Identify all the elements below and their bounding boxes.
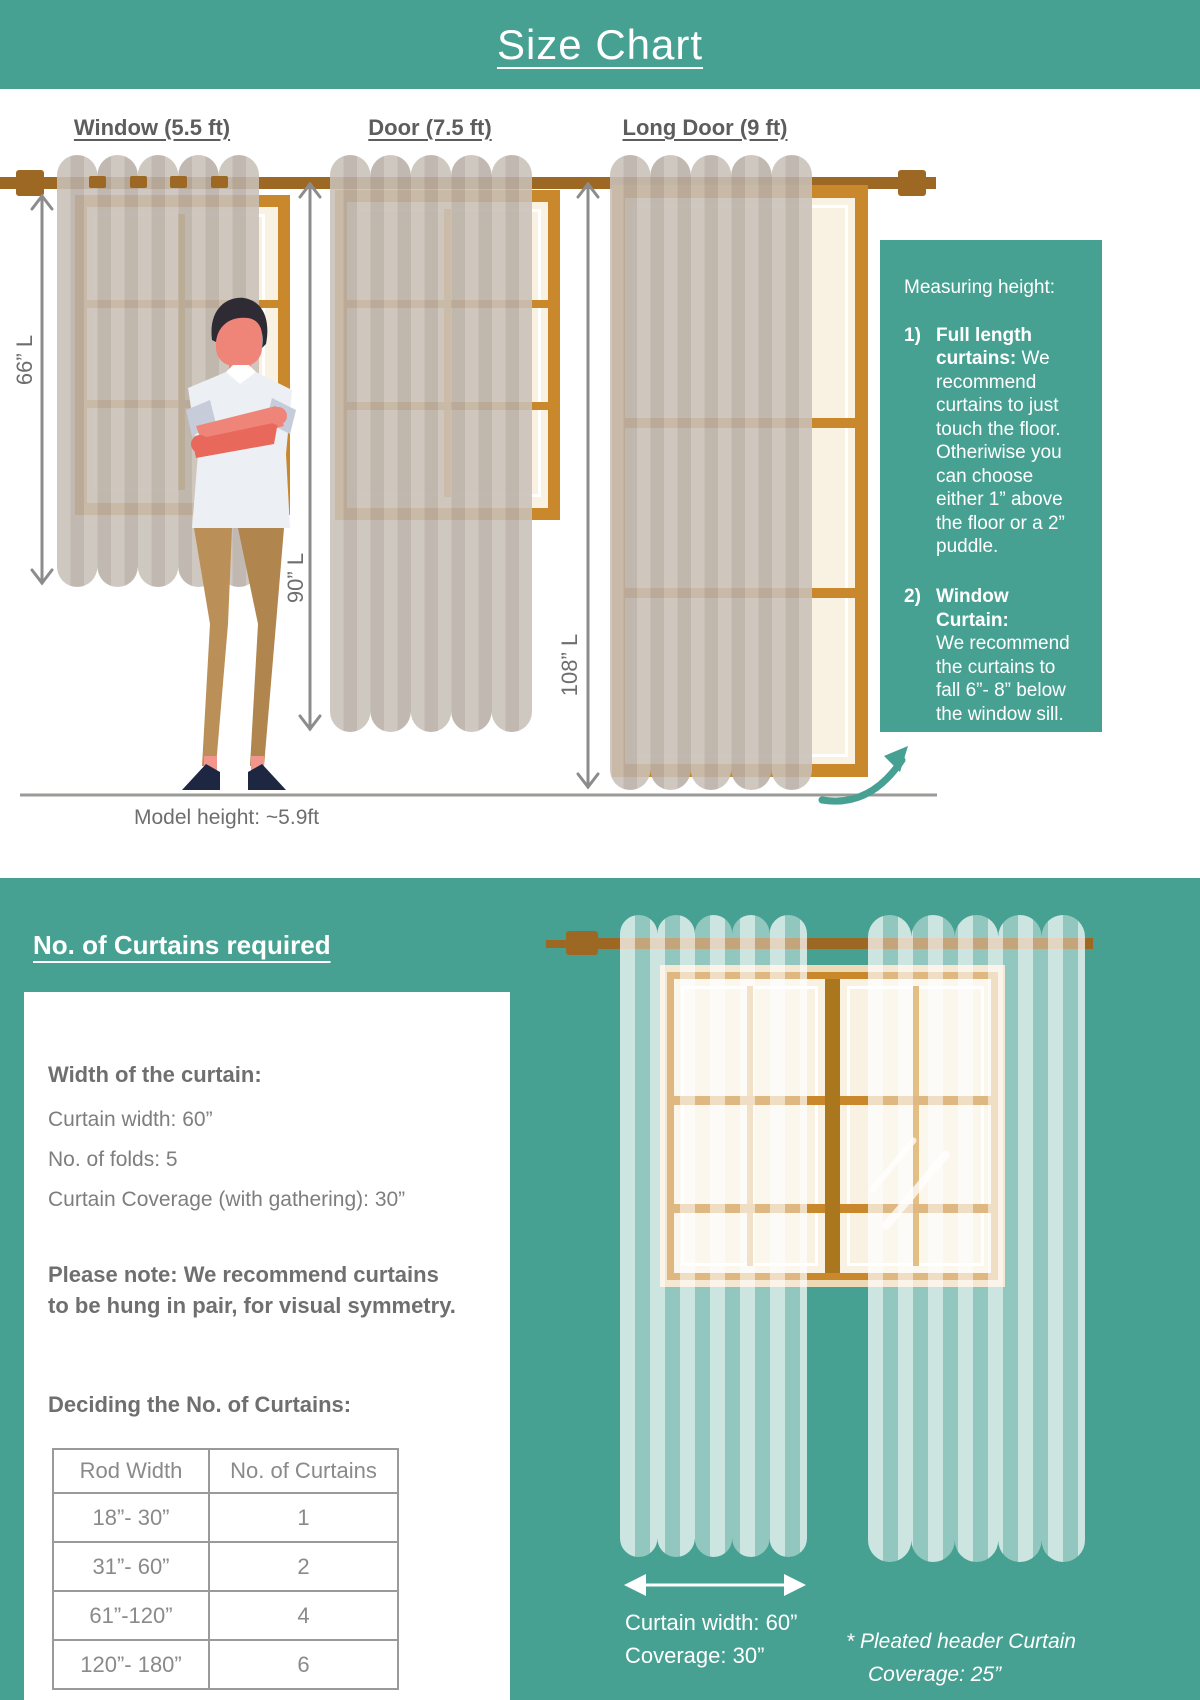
rod-width-cell: 31”- 60” <box>53 1542 209 1591</box>
curtain-count-cell: 2 <box>209 1542 398 1591</box>
bottom-width-line2: Coverage: 30” <box>625 1639 797 1672</box>
rod-end-cap-right <box>898 170 926 196</box>
grommet-tab <box>130 176 147 188</box>
curtain-width-line: Curtain width: 60” <box>48 1108 213 1132</box>
width-heading: Width of the curtain: <box>48 1062 262 1088</box>
grommet-tab <box>211 176 228 188</box>
rod-width-cell: 120”- 180” <box>53 1640 209 1689</box>
table-header-row: Rod Width No. of Curtains <box>53 1449 398 1493</box>
info-item-1: 1) Full length curtains: We recommend cu… <box>904 324 1082 559</box>
info-item-1-number: 1) <box>904 324 936 559</box>
info-item-2: 2) Window Curtain:We recommend the curta… <box>904 585 1082 726</box>
pleated-note-line2: Coverage: 25” <box>868 1659 1076 1692</box>
door-mullion <box>444 209 451 497</box>
table-row: 61”-120” 4 <box>53 1591 398 1640</box>
info-item-1-text: Full length curtains: We recommend curta… <box>936 324 1082 559</box>
info-item-2-number: 2) <box>904 585 936 726</box>
label-long-door: Long Door (9 ft) <box>623 115 788 141</box>
col-header-no-curtains: No. of Curtains <box>209 1449 398 1493</box>
bottom-width-line1: Curtain width: 60” <box>625 1606 797 1639</box>
pleated-note: * Pleated header Curtain Coverage: 25” <box>846 1626 1076 1691</box>
table-row: 31”- 60” 2 <box>53 1542 398 1591</box>
table-heading: Deciding the No. of Curtains: <box>48 1392 351 1418</box>
label-door: Door (7.5 ft) <box>368 115 491 141</box>
length-label-108: 108” L <box>557 625 583 705</box>
curtain-count-cell: 4 <box>209 1591 398 1640</box>
bottom-window-divider <box>825 979 840 1273</box>
info-item-2-text: Window Curtain:We recommend the curtains… <box>936 585 1082 726</box>
bottom-heading: No. of Curtains required <box>33 930 331 961</box>
note-line-1: Please note: We recommend curtains <box>48 1262 439 1288</box>
measuring-height-box: Measuring height: 1) Full length curtain… <box>880 240 1102 732</box>
long-door-bar <box>625 588 855 598</box>
info-box-title: Measuring height: <box>904 276 1082 300</box>
door-bar <box>347 300 548 308</box>
curtain-count-cell: 6 <box>209 1640 398 1689</box>
pleated-note-line1: * Pleated header Curtain <box>846 1626 1076 1659</box>
coverage-line: Curtain Coverage (with gathering): 30” <box>48 1188 405 1212</box>
door-bar <box>347 402 548 410</box>
long-door-inner-frame <box>632 205 848 757</box>
grommet-tab <box>89 176 106 188</box>
rod-width-cell: 61”-120” <box>53 1591 209 1640</box>
bottom-width-label: Curtain width: 60” Coverage: 30” <box>625 1606 797 1672</box>
bottom-window-mullion <box>747 986 753 1266</box>
bottom-window-mullion <box>913 986 919 1266</box>
length-label-66: 66” L <box>12 320 38 400</box>
size-chart-infographic: Size Chart Window (5.5 ft) Door (7.5 ft)… <box>0 0 1200 1700</box>
bottom-rod-cap <box>566 931 598 955</box>
page-title: Size Chart <box>497 21 703 69</box>
bottom-window-bar <box>840 1096 991 1105</box>
table-row: 120”- 180” 6 <box>53 1640 398 1689</box>
bottom-curtain-rod <box>596 938 1093 949</box>
bottom-window-bar <box>840 1204 991 1213</box>
length-label-90: 90” L <box>283 538 309 618</box>
bottom-window-bar <box>674 1204 825 1213</box>
curtain-count-cell: 1 <box>209 1493 398 1542</box>
header-band: Size Chart <box>0 0 1200 89</box>
col-header-rod-width: Rod Width <box>53 1449 209 1493</box>
model-height-caption: Model height: ~5.9ft <box>134 806 319 830</box>
grommet-tab <box>170 176 187 188</box>
label-window: Window (5.5 ft) <box>74 115 230 141</box>
note-line-2: to be hung in pair, for visual symmetry. <box>48 1293 456 1319</box>
bottom-window-bar <box>674 1096 825 1105</box>
curtain-count-table: Rod Width No. of Curtains 18”- 30” 1 31”… <box>52 1448 399 1690</box>
rod-width-cell: 18”- 30” <box>53 1493 209 1542</box>
folds-line: No. of folds: 5 <box>48 1148 178 1172</box>
rod-end-cap-left <box>16 170 44 196</box>
table-row: 18”- 30” 1 <box>53 1493 398 1542</box>
curved-arrow-head <box>884 746 908 772</box>
long-door-bar <box>625 418 855 428</box>
